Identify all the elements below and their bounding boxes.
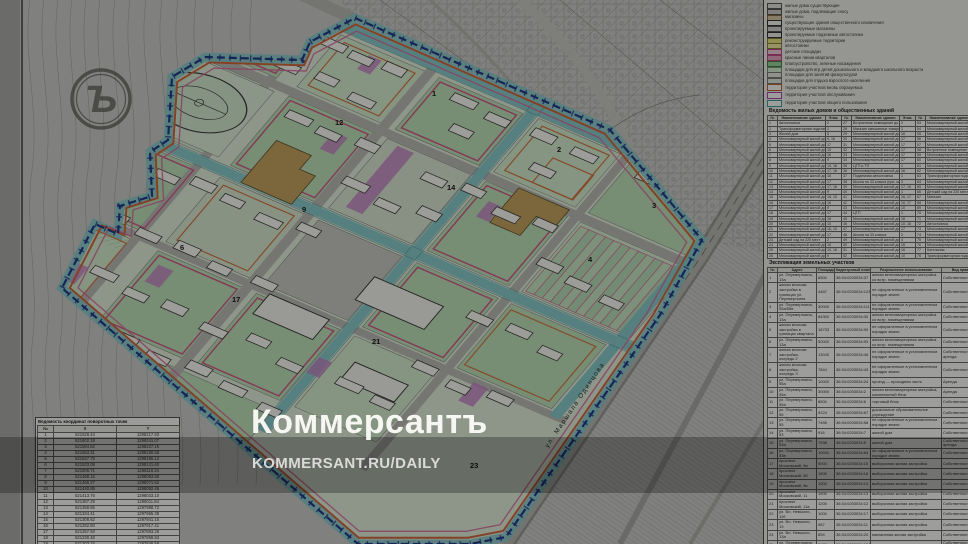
table-cell: 7 <box>768 348 778 363</box>
table-cell: 1000 <box>817 479 835 489</box>
table-cell: торговый блок <box>871 398 942 408</box>
table-cell: Многоквартирный жилой дом 3 секции <box>778 227 826 232</box>
table-row: 23ул. Вл. Невского, 1398736:34:0203034:1… <box>768 520 968 530</box>
table-cell: ул. Переверткина, 53а <box>778 438 817 448</box>
table-cell: Многоквартирный жилой дом 2 секции <box>926 184 968 189</box>
column-header: Наименование здания <box>852 115 900 120</box>
table-row: 16Многоквартирный жилой дом1642Многоквар… <box>768 200 968 205</box>
legend-label: детские площадки <box>785 50 821 54</box>
table-cell: 10041 <box>817 449 835 459</box>
planning-document: ул. Маршала Одинцова 1234914172123612 жи… <box>0 0 968 544</box>
table-cell: Многоквартирный жилой дом со встр. пом. <box>926 227 968 232</box>
legend-label: магазины <box>785 15 804 19</box>
table-cell: 23 <box>768 520 778 530</box>
table-row: 20Многоквартирный жилой дом1046Многоквар… <box>768 221 968 226</box>
table-cell: проспект Московский, 11а <box>778 499 817 509</box>
table-row: 8жилая многокв. застройка, очередь 37844… <box>768 362 968 377</box>
table-row: 20проспект Московский, 11150036:34:02030… <box>768 489 968 499</box>
plot-number: 23 <box>470 461 478 470</box>
plot-number: 2 <box>557 145 561 154</box>
kommersant-logo-icon: Ъ <box>68 66 134 132</box>
table-cell: Собственность <box>942 398 968 408</box>
table-cell: не оформленные в установленном порядке з… <box>871 323 942 338</box>
table-cell: Многоквартирный жилой дом со встр. пом. <box>852 237 900 242</box>
legend-swatch <box>767 78 782 84</box>
table-cell: 16 <box>768 449 778 459</box>
table-cell: 16733 <box>817 323 835 338</box>
table-cell: Многоквартирный жилой дом <box>778 205 826 210</box>
table-row: 19Многоквартирный жилой дом1645Многоквар… <box>768 216 968 221</box>
legend-label: проектируемые магазины <box>785 27 835 31</box>
table-cell: 3 <box>768 302 778 312</box>
land-plots-table: №АдресПлощадь, м²Кадастровый номерРазреш… <box>767 267 968 544</box>
table-cell: 22 <box>768 510 778 520</box>
table-cell: 1500 <box>817 469 835 479</box>
table-row: 18проспект Московский, 9б150036:34:02030… <box>768 469 968 479</box>
table-cell: Собственность <box>942 499 968 509</box>
legend-label: территория участков общего пользования <box>785 101 867 105</box>
table-cell: 84300 <box>817 313 835 323</box>
table-cell: 36:34:0203034:67 <box>835 408 871 418</box>
table-cell: жилая многокв. застройка, очередь 3 <box>778 362 817 377</box>
table-cell: Многоквартирный жилой дом <box>778 221 826 226</box>
table-cell: 36:34:0203034:20 <box>835 530 871 540</box>
table-row: 12ул. Переверткина, 55922436:34:0203034:… <box>768 408 968 418</box>
legend-label: площадки для игр детей дошкольного и мла… <box>785 68 923 72</box>
table-cell: 4 <box>768 313 778 323</box>
table-cell: не оформленные в установленном порядке з… <box>871 348 942 363</box>
table-cell: проспект Московский, 9в <box>778 479 817 489</box>
table-cell: Многоквартирный жилой дом <box>926 211 968 216</box>
table-cell: Многоквартирный жилой дом 2 секции <box>926 168 968 173</box>
table-cell: 36:34:0203034:93 <box>835 337 871 347</box>
table-cell: ул. Переверткина, 55а/55в <box>778 302 817 312</box>
page-left-margin <box>0 0 20 544</box>
table-cell: Многоквартирный жилой дом со встр. пом. <box>852 131 900 136</box>
table-cell: 50000 <box>817 337 835 347</box>
table-cell: Многоквартирный жилой дом 2 секции <box>926 179 968 184</box>
table-cell: выборочная жилая застройка <box>871 459 942 469</box>
table-cell: 987 <box>817 520 835 530</box>
buildings-table-title: Ведомость жилых домов и общественных зда… <box>769 109 966 114</box>
table-cell: 36:34:0203034:5 <box>835 438 871 448</box>
table-cell: Многоквартирный жилой дом <box>778 190 826 195</box>
table-row: 19проспект Московский, 9в100036:34:02030… <box>768 479 968 489</box>
table-cell: ул. Переверткина, 55а <box>778 387 817 397</box>
legend-label: площадки для занятий физкультурой <box>785 73 857 77</box>
table-cell: ул. Вл. Невского, 11б <box>778 510 817 520</box>
table-cell: Многоквартирный жилой дом <box>926 237 968 242</box>
table-cell: Многоквартирный жилой дом <box>778 158 826 163</box>
table-row: 16ул. Переверткина, 53в1004136:34:020303… <box>768 449 968 459</box>
table-cell: Собственность <box>942 283 968 302</box>
table-cell: 36:34:0203034:12 <box>835 499 871 509</box>
table-row: 25ул. Переверткина, 57а347036:34:0203034… <box>768 540 968 544</box>
table-cell: ул. Переверткина, 55 <box>778 418 817 428</box>
table-cell: 13 <box>768 418 778 428</box>
table-row: 7жилая многокв. застройка, очередь 21304… <box>768 348 968 363</box>
table-cell: Многоквартирный жилой дом <box>778 200 826 205</box>
table-cell: 36:34:0203034:64 <box>835 449 871 459</box>
table-cell: 2 <box>768 283 778 302</box>
table-row: 9ул. Переверткина, 55а1000036:34:0203034… <box>768 377 968 387</box>
table-cell: Детский сад на 220 мест <box>926 190 968 195</box>
table-cell: Многоквартирный жилой дом <box>852 158 900 163</box>
table-cell: 894 <box>817 530 835 540</box>
table-row: 10ул. Переверткина, 55а3000036:34:020303… <box>768 387 968 397</box>
table-row: 24ул. Вл. Невского, 13а89436:34:0203034:… <box>768 530 968 540</box>
table-cell: ул. Переверткина, 53в <box>778 449 817 459</box>
plot-number: 3 <box>652 201 656 210</box>
table-cell: Собственность <box>942 489 968 499</box>
table-cell: Многоквартирный жилой дом 2 секции <box>926 121 968 126</box>
table-cell: жилая многоквартирная застройка, комплек… <box>871 387 942 397</box>
legend-label: жилые дома существующие <box>785 4 840 8</box>
table-row: 9Многоквартирный жилой дом 3 секции10, 1… <box>768 163 968 168</box>
table-cell: Многоквартирный жилой дом 2 секции <box>852 216 900 221</box>
table-cell: 7455 <box>817 418 835 428</box>
table-cell: ул. Вл. Невского, 13 <box>778 520 817 530</box>
table-row: 25Многоквартирный жилой дом 2 секции10, … <box>768 248 968 253</box>
table-cell: жилая многокв. застройка в границах ул. … <box>778 283 817 302</box>
table-cell: Многоквартирный жилой дом <box>926 126 968 131</box>
table-cell: Многоквартирный жилой дом <box>778 232 826 237</box>
table-cell: проспект Московский, 9а <box>778 459 817 469</box>
table-cell: магазинная жилая застройка <box>871 530 942 540</box>
table-cell: 10000 <box>817 377 835 387</box>
table-cell: 5000 <box>817 459 835 469</box>
page-fold-line <box>21 0 23 544</box>
table-cell: жилой дом <box>871 438 942 448</box>
table-row: 17Многоквартирный жилой дом943Многокварт… <box>768 205 968 210</box>
table-cell: Многоквартирный жилой дом 2 секции <box>778 179 826 184</box>
table-cell: 52 <box>842 253 852 258</box>
table-cell: 36:34:0203034:43 <box>835 362 871 377</box>
table-row: 5жилая многокв. застройка в границах ква… <box>768 323 968 338</box>
table-cell: Магазин смешанных товаров <box>852 126 900 131</box>
table-cell: 1500 <box>817 489 835 499</box>
table-row: 14Многоквартирный жилой дом940Многокварт… <box>768 190 968 195</box>
legend: жилые дома существующиежилые дома, подле… <box>767 3 966 107</box>
table-row: 4ул. Переверткина, 13а8430036:34:0203034… <box>768 313 968 323</box>
table-cell: ул. Переверткина, 55а <box>778 377 817 387</box>
table-cell: Многоквартирный жилой дом <box>926 142 968 147</box>
table-row: 3Жилой дом529Многоквартирный жилой дом с… <box>768 131 968 136</box>
table-cell: Многоквартирный жилой дом <box>778 153 826 158</box>
plot-number: 12 <box>335 118 343 127</box>
table-cell: Многоквартирный жилой дом <box>778 253 826 258</box>
table-row: 21проспект Московский, 11а120036:34:0203… <box>768 499 968 509</box>
table-cell: жилой дом <box>871 428 942 438</box>
legend-label: автостоянки <box>785 44 809 48</box>
table-cell: Собственность <box>942 273 968 283</box>
legend-label: благоустройство, зеленые насаждения <box>785 62 861 66</box>
table-cell: 4487 <box>817 283 835 302</box>
table-cell: Собственность <box>942 510 968 520</box>
table-cell: не оформленные в установленном порядке з… <box>871 449 942 459</box>
table-cell: Собственность <box>942 459 968 469</box>
table-cell: жилая многоквартирная застройка со встр.… <box>871 337 942 347</box>
table-row: 6ул. Переверткина, 13а5000036:34:0203034… <box>768 337 968 347</box>
table-row: 11Многоквартирный жилой дом1637Подземная… <box>768 174 968 179</box>
table-cell: Собственность <box>942 362 968 377</box>
table-cell: 36:34:0203034:14 <box>835 479 871 489</box>
table-row: 4Многоквартирный жилой дом 2 секции9, 16… <box>768 137 968 142</box>
table-row: 23Детский сад на 220 мест249Многоквартир… <box>768 237 968 242</box>
plot-number: 6 <box>180 243 184 252</box>
table-cell: Многоквартирный жилой дом 2 секции <box>778 248 826 253</box>
table-cell: 14 <box>768 428 778 438</box>
table-row: 5Многоквартирный жилой дом1731Многокварт… <box>768 142 968 147</box>
table-cell: Многоквартирный жилой дом <box>926 137 968 142</box>
table-row: 14ул. Переверткина, 5391636:34:0203034:7… <box>768 428 968 438</box>
table-row: 10Многоквартирный жилой дом17, 1636Много… <box>768 168 968 173</box>
table-cell: 1200 <box>817 499 835 509</box>
table-cell: Многоквартирный жилой дом со встр. пом. <box>926 243 968 248</box>
table-cell: 36:34:0203034:46 <box>835 348 871 363</box>
table-cell: Собственность <box>942 428 968 438</box>
coordinates-panel: Ведомость координат поворотных точек №XY… <box>35 417 180 544</box>
table-cell: Многоквартирный жилой дом <box>852 142 900 147</box>
table-cell: 36:34:0203034:111 <box>835 302 871 312</box>
table-cell: 36:34:0203034:7 <box>835 428 871 438</box>
table-cell: 25 <box>768 540 778 544</box>
table-cell: 9 <box>768 377 778 387</box>
table-cell: 12 <box>768 408 778 418</box>
table-cell: 36:34:0203034:13 <box>835 489 871 499</box>
table-cell: Трансформаторная подстанция <box>926 174 968 179</box>
table-cell: Школа на 33 класса (при. шк. № 16) <box>852 179 900 184</box>
table-cell: Собственность <box>942 313 968 323</box>
table-cell: 36:34:0203034:58 <box>835 418 871 428</box>
table-cell: Многоквартирный жилой дом 2 секции <box>852 190 900 195</box>
table-cell: 36:34:0203034:134 <box>835 540 871 544</box>
table-cell: Собственность <box>942 479 968 489</box>
table-cell: Трансформаторная подстанция <box>926 253 968 258</box>
table-row: 12Многоквартирный жилой дом 2 секции1738… <box>768 179 968 184</box>
table-cell: ул. Вл. Невского, 13а <box>778 530 817 540</box>
table-cell: Детский сад на 220 мест <box>778 237 826 242</box>
table-cell: Многоквартирный жилой дом 3 секции <box>778 163 826 168</box>
table-cell: 20 <box>768 489 778 499</box>
table-cell: 10 <box>900 253 916 258</box>
table-cell: ул. Переверткина, 55 <box>778 408 817 418</box>
table-cell: 13040 <box>817 348 835 363</box>
table-cell: выборочная жилая застройка <box>871 499 942 509</box>
table-row: 24Многоквартирный жилой дом1650Многоквар… <box>768 243 968 248</box>
table-cell: Многоквартирный жилой дом 3 секции <box>852 195 900 200</box>
table-cell: Многоквартирный жилой дом 3 секции <box>852 184 900 189</box>
table-cell: 30000 <box>817 387 835 397</box>
table-cell: 19 <box>768 479 778 489</box>
table-row: 26Многоквартирный жилой дом952Многокварт… <box>768 253 968 258</box>
table-cell: Многоквартирный жилой дом <box>852 137 900 142</box>
legend-item: территория участков общего пользования <box>767 99 966 107</box>
table-cell: Подземная автостоянка <box>852 174 900 179</box>
table-cell: 6500 <box>817 273 835 283</box>
table-cell: 3470 <box>817 540 835 544</box>
table-cell: Собственность, аренда <box>942 438 968 448</box>
table-cell: Многоквартирный жилой дом 2 секции <box>778 211 826 216</box>
table-cell: Собственность, аренда <box>942 348 968 363</box>
table-cell: Многоквартирный жилой дом <box>852 227 900 232</box>
table-cell: Многоквартирный жилой дом <box>852 253 900 258</box>
table-cell: Собственность <box>942 408 968 418</box>
table-row: 2Трансформаторная подстанция128Магазин с… <box>768 126 968 131</box>
table-cell: 6 <box>768 337 778 347</box>
table-cell: 26 <box>768 253 778 258</box>
table-cell: Многоквартирный жилой дом со встр. пом. <box>926 205 968 210</box>
table-cell: Собственность <box>942 449 968 459</box>
news-image: ул. Маршала Одинцова 1234914172123612 жи… <box>0 0 968 544</box>
legend-label: территория участков вновь образуемых <box>785 86 863 90</box>
legend-label: проектируемые подземные автостоянки <box>785 33 863 37</box>
table-cell: Многоквартирный жилой дом 2 секции <box>852 243 900 248</box>
table-cell: Собственность, аренда <box>942 540 968 544</box>
table-cell: 10 <box>768 387 778 397</box>
legend-item: территория участков вновь образуемых <box>767 84 966 92</box>
table-cell: жилая многоквартирная застройка со встр.… <box>871 313 942 323</box>
plot-number: 17 <box>232 295 240 304</box>
table-cell: 36:34:0203034:90 <box>835 323 871 338</box>
table-cell: 30000 <box>817 302 835 312</box>
table-cell: Собственность <box>942 337 968 347</box>
table-cell: Собственность <box>942 530 968 540</box>
table-cell: выборочная жилая застройка <box>871 489 942 499</box>
table-cell: Многоквартирный жилой дом <box>778 168 826 173</box>
table-cell: Многоквартирный жилой дом <box>852 147 900 152</box>
table-cell: проспект Московский, 11 <box>778 489 817 499</box>
table-cell: Многоквартирный жилой дом <box>778 147 826 152</box>
table-cell: дошкольное образовательное учреждение <box>871 408 942 418</box>
legend-label: красные линии кварталов <box>785 56 835 60</box>
table-cell: проспект Московский, 9б <box>778 469 817 479</box>
table-cell: ул. Переверткина, 55а <box>778 398 817 408</box>
table-cell: Многоквартирный жилой дом <box>926 131 968 136</box>
table-cell: 11 <box>768 398 778 408</box>
table-cell: 7938 <box>817 438 835 448</box>
table-cell: Многоквартирный жилой дом 2 секции <box>926 158 968 163</box>
legend-swatch <box>767 100 782 107</box>
legend-item: территория участков обслуживания <box>767 92 966 100</box>
site-credit: KOMMERSANT.RU/DAILY <box>252 456 441 471</box>
table-cell: выборочная жилая застройка <box>871 510 942 520</box>
table-cell: 18 <box>768 469 778 479</box>
table-cell: 9 <box>826 253 842 258</box>
table-cell: Многоквартирный жилой дом <box>852 153 900 158</box>
table-row: 6Многоквартирный жилой дом1032Многокварт… <box>768 147 968 152</box>
table-cell: 8500 <box>817 398 835 408</box>
table-cell: Многоквартирный жилой дом <box>778 174 826 179</box>
table-row: 2жилая многокв. застройка в границах ул.… <box>768 283 968 302</box>
table-row: 1Автостоянка227Встроенное помещение до 7… <box>768 121 968 126</box>
table-cell: Многоквартирный жилой дом <box>778 243 826 248</box>
table-cell: жилая многоквартирная застройка со встр.… <box>871 273 942 283</box>
table-cell: Многоквартирный жилой дом <box>852 205 900 210</box>
table-cell: Многоквартирный жилой дом <box>778 195 826 200</box>
table-cell: 36:34:0203034:11 <box>835 520 871 530</box>
column-header: Кадастровый номер <box>835 267 871 272</box>
table-cell: 17 <box>768 459 778 469</box>
table-cell: Трансформаторная подстанция <box>778 126 826 131</box>
table-cell: проезд — проходная часть <box>871 540 942 544</box>
table-row: 11ул. Переверткина, 55а850036:34:0203034… <box>768 398 968 408</box>
table-cell: Многоквартирный жилой дом со встр. пом. <box>926 153 968 158</box>
table-cell: Многоквартирный жилой дом <box>852 200 900 205</box>
table-cell: 8 <box>768 362 778 377</box>
table-row: 8Многоквартирный жилой дом934Многокварти… <box>768 158 968 163</box>
table-cell: Собственность <box>942 323 968 338</box>
column-header: Разрешенное использование <box>871 267 942 272</box>
table-cell: Многоквартирный жилой дом 2 секции <box>778 137 826 142</box>
table-cell: Многоквартирный жилой дом 2 секции <box>852 248 900 253</box>
table-cell: жилая многокв. застройка, очередь 2 <box>778 348 817 363</box>
table-cell: Аренда <box>942 387 968 397</box>
table-cell: 36:34:0203034:15 <box>835 459 871 469</box>
legend-panel: жилые дома существующиежилые дома, подле… <box>763 0 968 544</box>
table-row: 22ул. Вл. Невского, 11б100036:34:0203034… <box>768 510 968 520</box>
column-header: Наименование здания <box>778 115 826 120</box>
plot-number: 9 <box>302 205 306 214</box>
kommersant-wordmark: Коммерсантъ <box>251 405 488 439</box>
legend-label: площадки для отдыха взрослого населения <box>785 79 870 83</box>
table-cell: Многоквартирный жилой дом <box>852 168 900 173</box>
table-row: 1ул. Переверткина, 13а650036:34:0203034:… <box>768 273 968 283</box>
table-cell: не оформленные в установленном порядке з… <box>871 283 942 302</box>
table-cell: ул. Переверткина, 13а <box>778 313 817 323</box>
table-cell: 36:34:0203034:17 <box>835 510 871 520</box>
table-cell: Многоквартирный жилой дом <box>852 221 900 226</box>
table-row: 13Многоквартирный жилой дом17, 1639Много… <box>768 184 968 189</box>
table-row: 15Многоквартирный жилой дом16, 1041Много… <box>768 195 968 200</box>
table-cell: 1000 <box>817 510 835 520</box>
legend-swatch <box>767 92 782 99</box>
table-row: 13ул. Переверткина, 55745536:34:0203034:… <box>768 418 968 428</box>
legend-label: территория участков обслуживания <box>785 93 855 97</box>
coords-title: Ведомость координат поворотных точек <box>38 420 178 424</box>
table-cell: жилая многокв. застройка в границах квар… <box>778 323 817 338</box>
table-cell: Многоквартирный жилой дом со встр. пом. <box>926 216 968 221</box>
table-cell: выборочная жилая застройка <box>871 520 942 530</box>
table-cell: 1 <box>768 273 778 283</box>
table-cell: 36:34:0203034:2 <box>835 387 871 397</box>
table-cell: выборочная жилая застройка <box>871 479 942 489</box>
legend-label: реконструируемые территории <box>785 39 845 43</box>
legend-label: жилые дома, подлежащие сносу <box>785 10 848 14</box>
table-cell: 36:34:0203034:6 <box>835 398 871 408</box>
table-cell: Многоквартирный жилой дом со встр. пом. <box>926 232 968 237</box>
table-cell: 9224 <box>817 408 835 418</box>
table-cell: не оформленные в установленном порядке з… <box>871 418 942 428</box>
table-cell: 21 <box>768 499 778 509</box>
table-cell: Аренда <box>942 377 968 387</box>
table-row: 7Многоквартирный жилой дом1633Многокварт… <box>768 153 968 158</box>
table-cell: 36:34:0203034:37 <box>835 273 871 283</box>
table-cell: 24 <box>768 530 778 540</box>
column-header: Наименование здания <box>926 115 968 120</box>
table-cell: 916 <box>817 428 835 438</box>
table-cell: выборочная жилая застройка <box>871 469 942 479</box>
table-cell: Собственность <box>942 520 968 530</box>
table-cell: 78 <box>916 253 926 258</box>
legend-label: существующие здания общественного назнач… <box>785 21 884 25</box>
column-header: Площадь, м² <box>817 267 835 272</box>
legend-swatch <box>767 84 782 91</box>
table-cell: Многоквартирный жилой дом <box>926 163 968 168</box>
coordinates-table: №XY1521628.441298217.932521602.181298241… <box>37 425 180 544</box>
table-cell: Многоквартирный жилой дом <box>778 184 826 189</box>
logo-glyph: Ъ <box>85 79 117 121</box>
